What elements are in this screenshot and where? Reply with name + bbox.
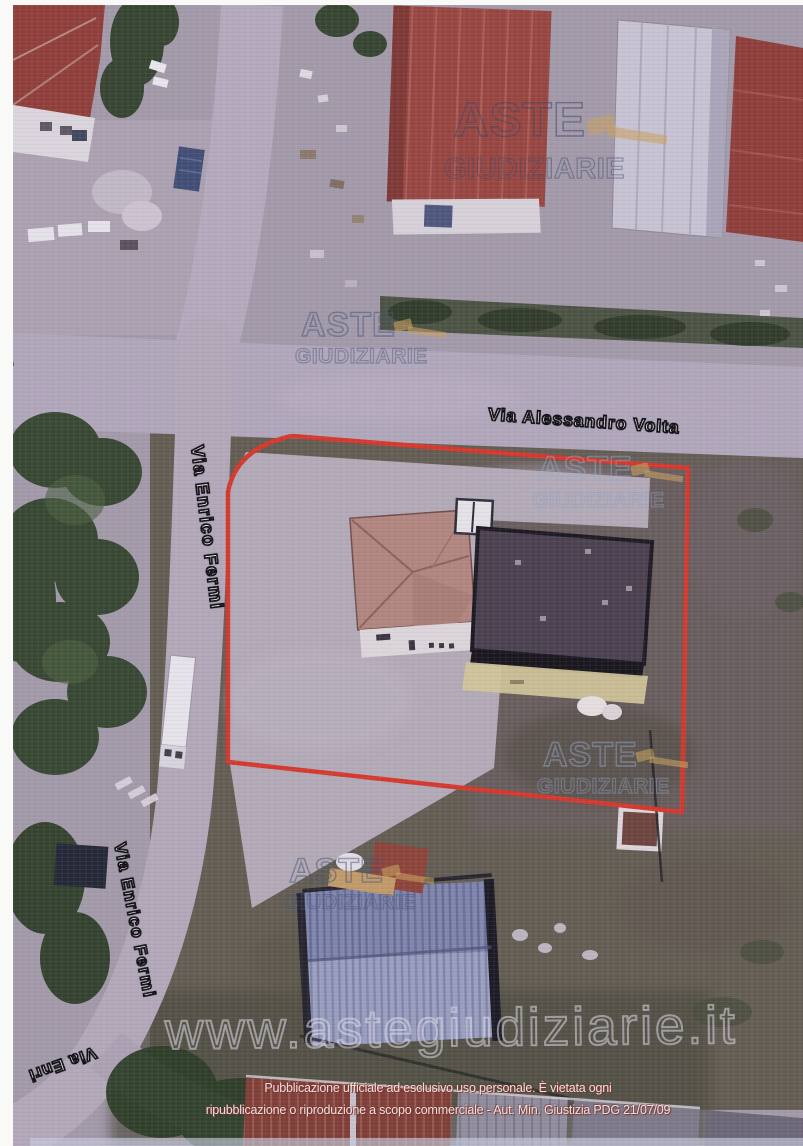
gavel-icon	[376, 858, 436, 890]
aste-giudiziarie-watermark: ASTE GIUDIZIARIE	[289, 854, 436, 913]
aste-giudiziarie-watermark: ASTE GIUDIZIARIE	[538, 452, 685, 511]
website-watermark: www.astegiudiziarie.it	[165, 995, 738, 1062]
aerial-scene	[13, 5, 803, 1146]
watermark-aste-text: ASTE	[454, 97, 586, 145]
gavel-icon	[625, 456, 685, 488]
aste-giudiziarie-watermark: ASTE GIUDIZIARIE	[301, 308, 448, 367]
gavel-icon	[630, 742, 690, 774]
trees-left-hedge	[13, 412, 147, 775]
scan-edge-strip	[30, 1138, 803, 1146]
scanned-page: Via Alessandro Volta Via Enrico Fermi Vi…	[0, 0, 803, 1146]
building-warehouse	[470, 528, 652, 678]
building-top-left-red	[13, 5, 105, 122]
gavel-icon	[578, 105, 670, 153]
aste-giudiziarie-watermark: ASTE GIUDIZIARIE	[454, 97, 670, 184]
aerial-photo: Via Alessandro Volta Via Enrico Fermi Vi…	[13, 5, 803, 1146]
shed-boundary-corner	[619, 809, 661, 849]
disclaimer-line-2: ripubblicazione o riproduzione a scopo c…	[113, 1100, 763, 1122]
disclaimer-line-1: Pubblicazione ufficiale ad esclusivo uso…	[113, 1078, 763, 1100]
building-bottom-left-dark	[54, 843, 109, 889]
aste-giudiziarie-watermark: ASTE GIUDIZIARIE	[543, 738, 690, 797]
gavel-icon	[388, 312, 448, 344]
disclaimer: Pubblicazione ufficiale ad esclusivo uso…	[113, 1078, 763, 1122]
watermark-giudiziarie-text: GIUDIZIARIE	[444, 155, 670, 184]
building-top-right-red	[726, 36, 803, 242]
